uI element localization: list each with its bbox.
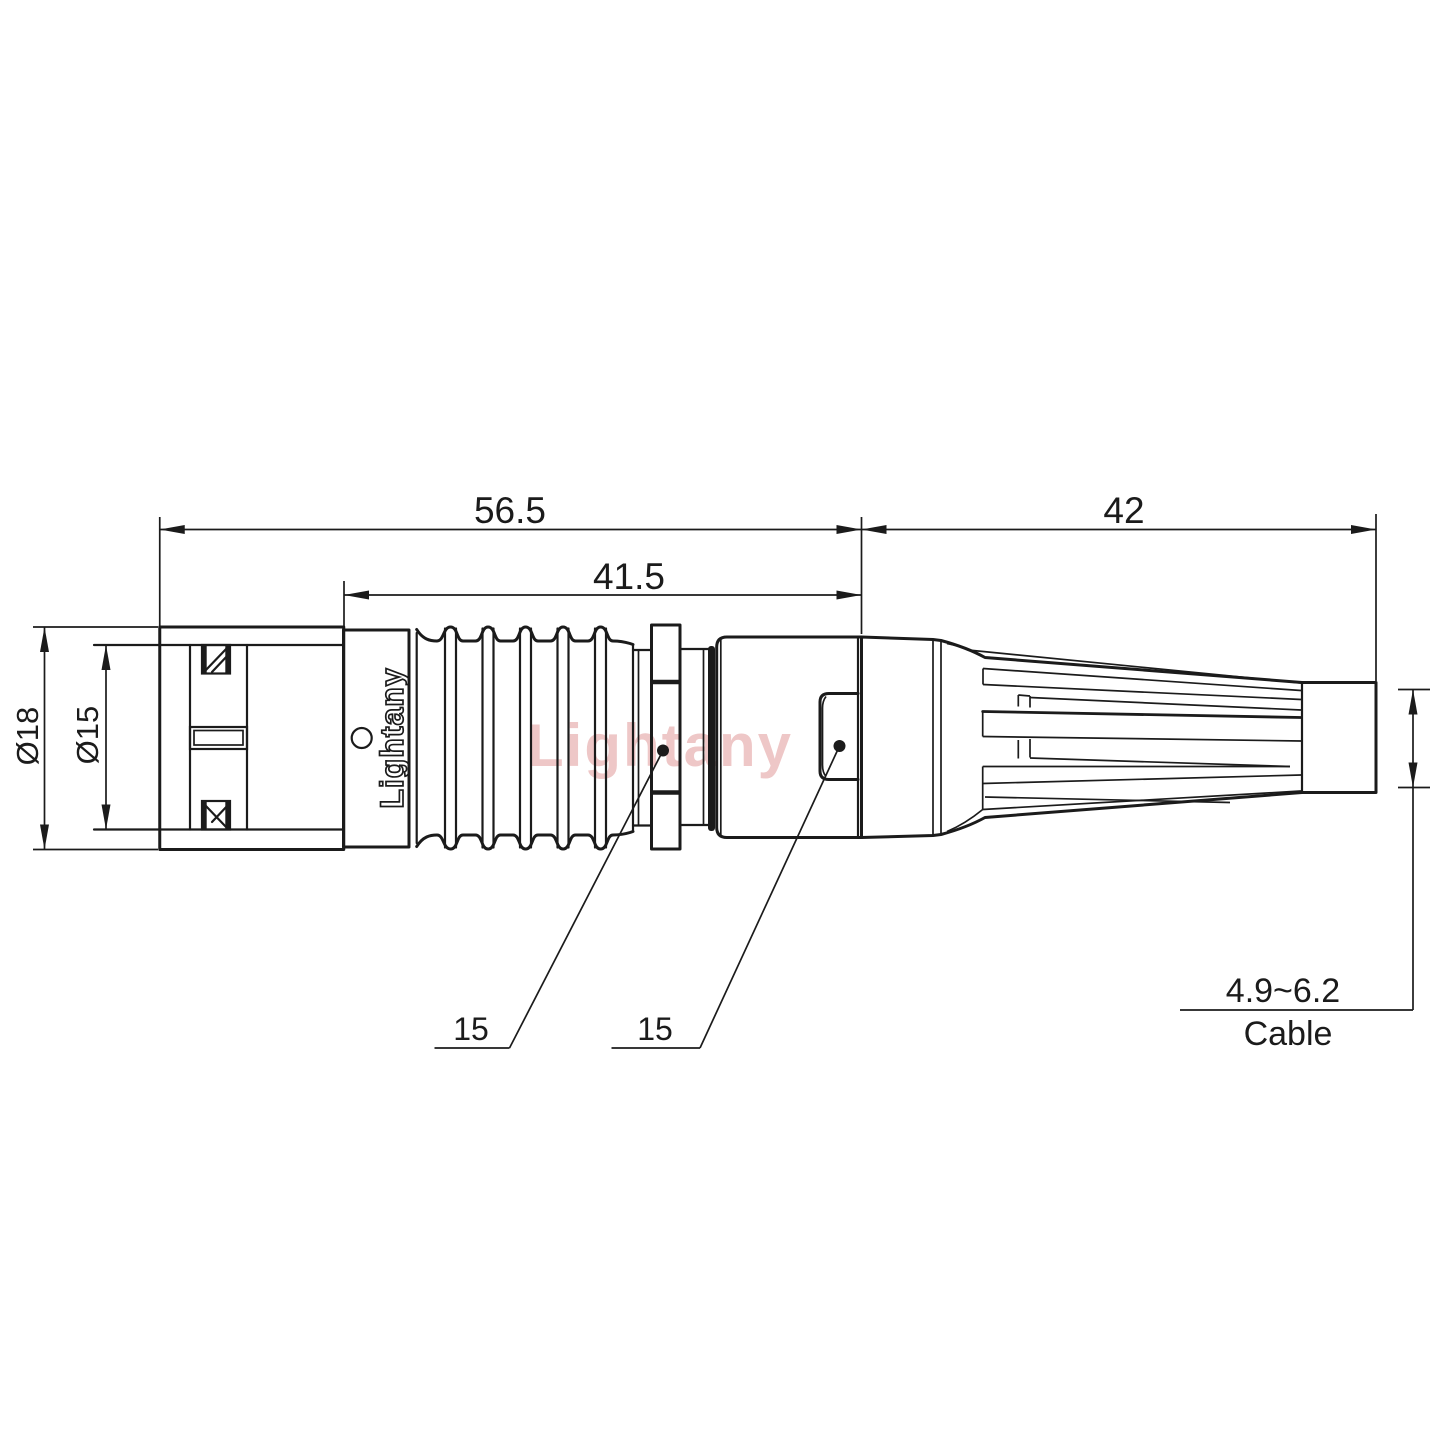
dim-rear-length-label: 42 (1103, 490, 1144, 531)
cable-caption-label: Cable (1244, 1015, 1333, 1053)
drawing-canvas: Lightany (0, 0, 1440, 1440)
brand-logo-text: Lightany (374, 667, 410, 808)
dimension-body-length: 41.5 (344, 556, 862, 628)
dim-inner-diameter-label: Ø15 (70, 706, 105, 765)
front-shell (94, 627, 344, 850)
dimension-inner-diameter: Ø15 (70, 645, 111, 830)
dimension-cable-diameter: 4.9~6.2 Cable (1180, 690, 1430, 1054)
leader-sleeve-size: 15 (612, 740, 846, 1048)
o-ring-gasket (708, 646, 715, 831)
leader-collar-label: 15 (453, 1011, 489, 1047)
cable-range-label: 4.9~6.2 (1226, 972, 1340, 1010)
dim-body-length-label: 41.5 (593, 556, 665, 597)
dimension-total-length: 56.5 (160, 490, 862, 634)
dim-outer-diameter-label: Ø18 (10, 707, 45, 766)
leader-sleeve-label: 15 (637, 1011, 673, 1047)
strain-relief-boot (862, 637, 1377, 838)
branding-panel: Lightany (344, 630, 417, 847)
dimension-rear-length: 42 (862, 490, 1377, 681)
half-moon-window (190, 727, 247, 749)
top-key (202, 645, 230, 674)
bottom-key (202, 801, 230, 830)
panel-dot-mark (352, 728, 372, 748)
dim-total-length-label: 56.5 (474, 490, 546, 531)
connector-technical-drawing: Lightany (0, 0, 1440, 1440)
boot-fins (947, 644, 1301, 832)
release-sleeve-window (820, 694, 858, 780)
